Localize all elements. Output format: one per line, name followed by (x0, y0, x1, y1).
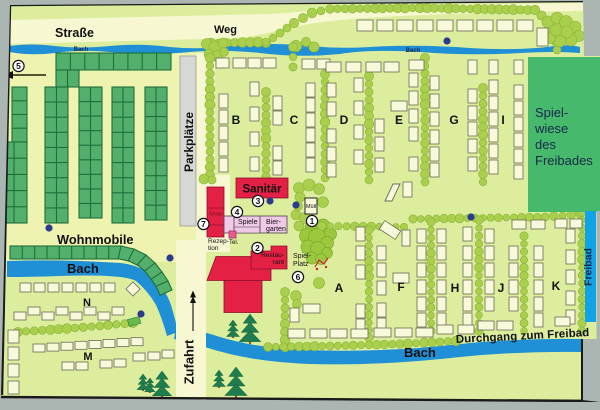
svg-text:A: A (335, 281, 344, 295)
svg-text:Bach: Bach (74, 47, 89, 53)
svg-text:Restau-: Restau- (261, 252, 284, 259)
svg-text:D: D (340, 113, 349, 127)
svg-text:J: J (498, 281, 505, 295)
svg-text:Bach: Bach (404, 345, 436, 360)
svg-text:tion: tion (208, 245, 219, 252)
svg-text:des: des (535, 137, 556, 152)
svg-text:B: B (232, 113, 241, 127)
svg-text:7: 7 (201, 219, 206, 229)
svg-text:I: I (501, 113, 504, 127)
svg-text:E: E (395, 113, 403, 127)
svg-text:Wohnmobile: Wohnmobile (57, 232, 134, 247)
svg-text:1: 1 (310, 216, 315, 226)
svg-text:G: G (449, 113, 458, 127)
svg-text:Tel.: Tel. (229, 240, 239, 246)
svg-text:wiese: wiese (534, 121, 568, 136)
svg-text:Bier-: Bier- (266, 219, 281, 226)
svg-text:N: N (83, 297, 91, 309)
svg-text:Zufahrt: Zufahrt (182, 339, 197, 384)
svg-text:4: 4 (235, 207, 240, 217)
svg-text:Weg: Weg (214, 24, 237, 36)
svg-text:5: 5 (16, 61, 21, 71)
svg-text:Straße: Straße (55, 26, 94, 40)
svg-text:garten: garten (266, 226, 286, 233)
svg-text:M: M (83, 351, 92, 363)
svg-text:F: F (397, 280, 404, 294)
svg-text:Spiele: Spiele (238, 219, 258, 226)
svg-text:Rezep-: Rezep- (208, 238, 229, 245)
svg-text:Müll: Müll (306, 204, 316, 210)
svg-text:Freibad: Freibad (583, 248, 595, 286)
svg-text:Platz: Platz (293, 261, 309, 268)
svg-text:Spiel-: Spiel- (535, 105, 568, 120)
svg-text:Shop: Shop (209, 212, 222, 218)
svg-text:Spiel-: Spiel- (293, 253, 312, 260)
svg-text:rant: rant (273, 259, 284, 266)
svg-text:Sanitär: Sanitär (243, 184, 283, 196)
svg-text:Bach: Bach (67, 261, 99, 276)
svg-text:6: 6 (296, 272, 301, 282)
svg-text:Parkplätze: Parkplätze (182, 112, 196, 172)
svg-text:2: 2 (255, 243, 260, 253)
svg-text:C: C (290, 113, 299, 127)
svg-text:H: H (451, 281, 460, 295)
svg-text:Bach: Bach (406, 48, 421, 54)
svg-text:Freibades: Freibades (535, 153, 593, 168)
svg-text:K: K (552, 279, 561, 293)
svg-text:3: 3 (256, 196, 261, 206)
